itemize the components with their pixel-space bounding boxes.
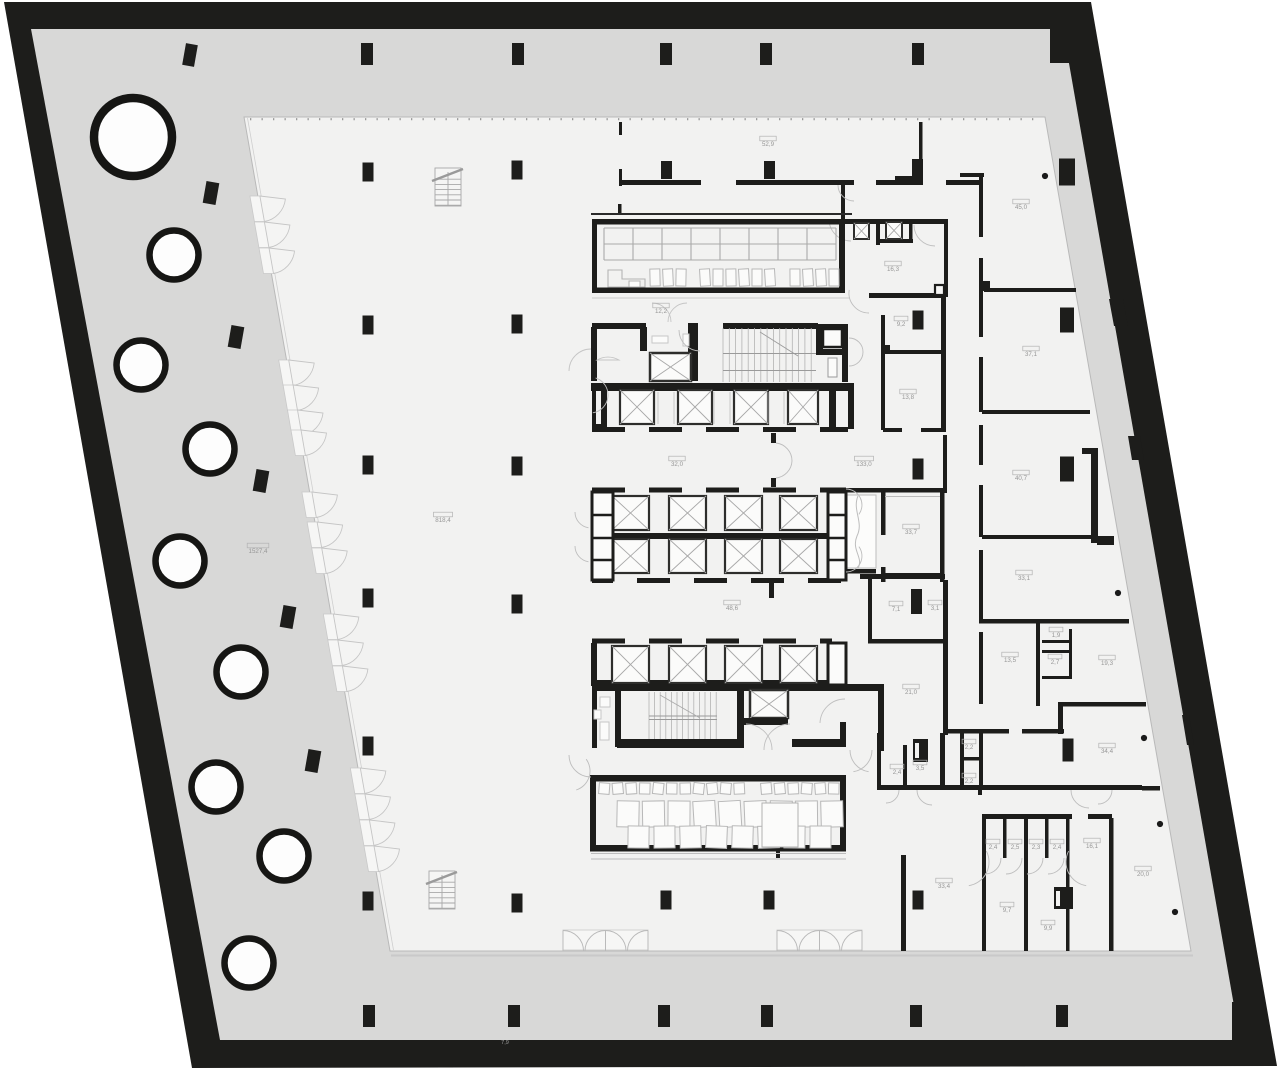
svg-text:9,9: 9,9 — [1044, 925, 1053, 932]
svg-text:133,0: 133,0 — [856, 461, 872, 468]
svg-text:2,4: 2,4 — [989, 844, 998, 851]
svg-text:13,8: 13,8 — [902, 394, 915, 401]
svg-text:33,7: 33,7 — [905, 529, 918, 536]
svg-text:34,4: 34,4 — [1101, 748, 1114, 755]
svg-text:2,4: 2,4 — [1053, 844, 1062, 851]
svg-text:40,7: 40,7 — [1015, 475, 1028, 482]
svg-text:3,5: 3,5 — [916, 765, 925, 772]
svg-text:48,6: 48,6 — [726, 605, 739, 612]
svg-text:2,2: 2,2 — [965, 778, 974, 785]
svg-text:2,4: 2,4 — [893, 769, 902, 776]
svg-text:16,1: 16,1 — [1086, 843, 1099, 850]
svg-text:2,7: 2,7 — [1051, 659, 1060, 666]
svg-text:19,3: 19,3 — [1101, 660, 1114, 667]
svg-text:33,1: 33,1 — [1018, 575, 1031, 582]
svg-text:1,9: 1,9 — [1052, 632, 1061, 639]
svg-text:2,5: 2,5 — [1011, 844, 1020, 851]
svg-text:20,0: 20,0 — [1137, 871, 1150, 878]
svg-text:52,9: 52,9 — [762, 141, 775, 148]
svg-text:33,4: 33,4 — [938, 883, 951, 890]
svg-text:16,3: 16,3 — [887, 266, 900, 273]
svg-text:32,0: 32,0 — [671, 461, 684, 468]
svg-text:37,1: 37,1 — [1025, 351, 1038, 358]
svg-text:7,1: 7,1 — [892, 606, 901, 613]
svg-text:13,5: 13,5 — [1004, 657, 1017, 664]
svg-text:7,9: 7,9 — [501, 1040, 509, 1046]
svg-text:9,7: 9,7 — [1003, 907, 1012, 914]
svg-text:2,2: 2,2 — [965, 744, 974, 751]
svg-text:2,3: 2,3 — [1032, 844, 1041, 851]
svg-text:12,2: 12,2 — [655, 308, 668, 315]
svg-text:3,1: 3,1 — [931, 605, 940, 612]
svg-text:9,2: 9,2 — [897, 321, 906, 328]
svg-text:818,4: 818,4 — [435, 517, 451, 524]
svg-text:21,0: 21,0 — [905, 689, 918, 696]
svg-text:45,0: 45,0 — [1015, 204, 1028, 211]
svg-text:1527,4: 1527,4 — [249, 548, 268, 555]
